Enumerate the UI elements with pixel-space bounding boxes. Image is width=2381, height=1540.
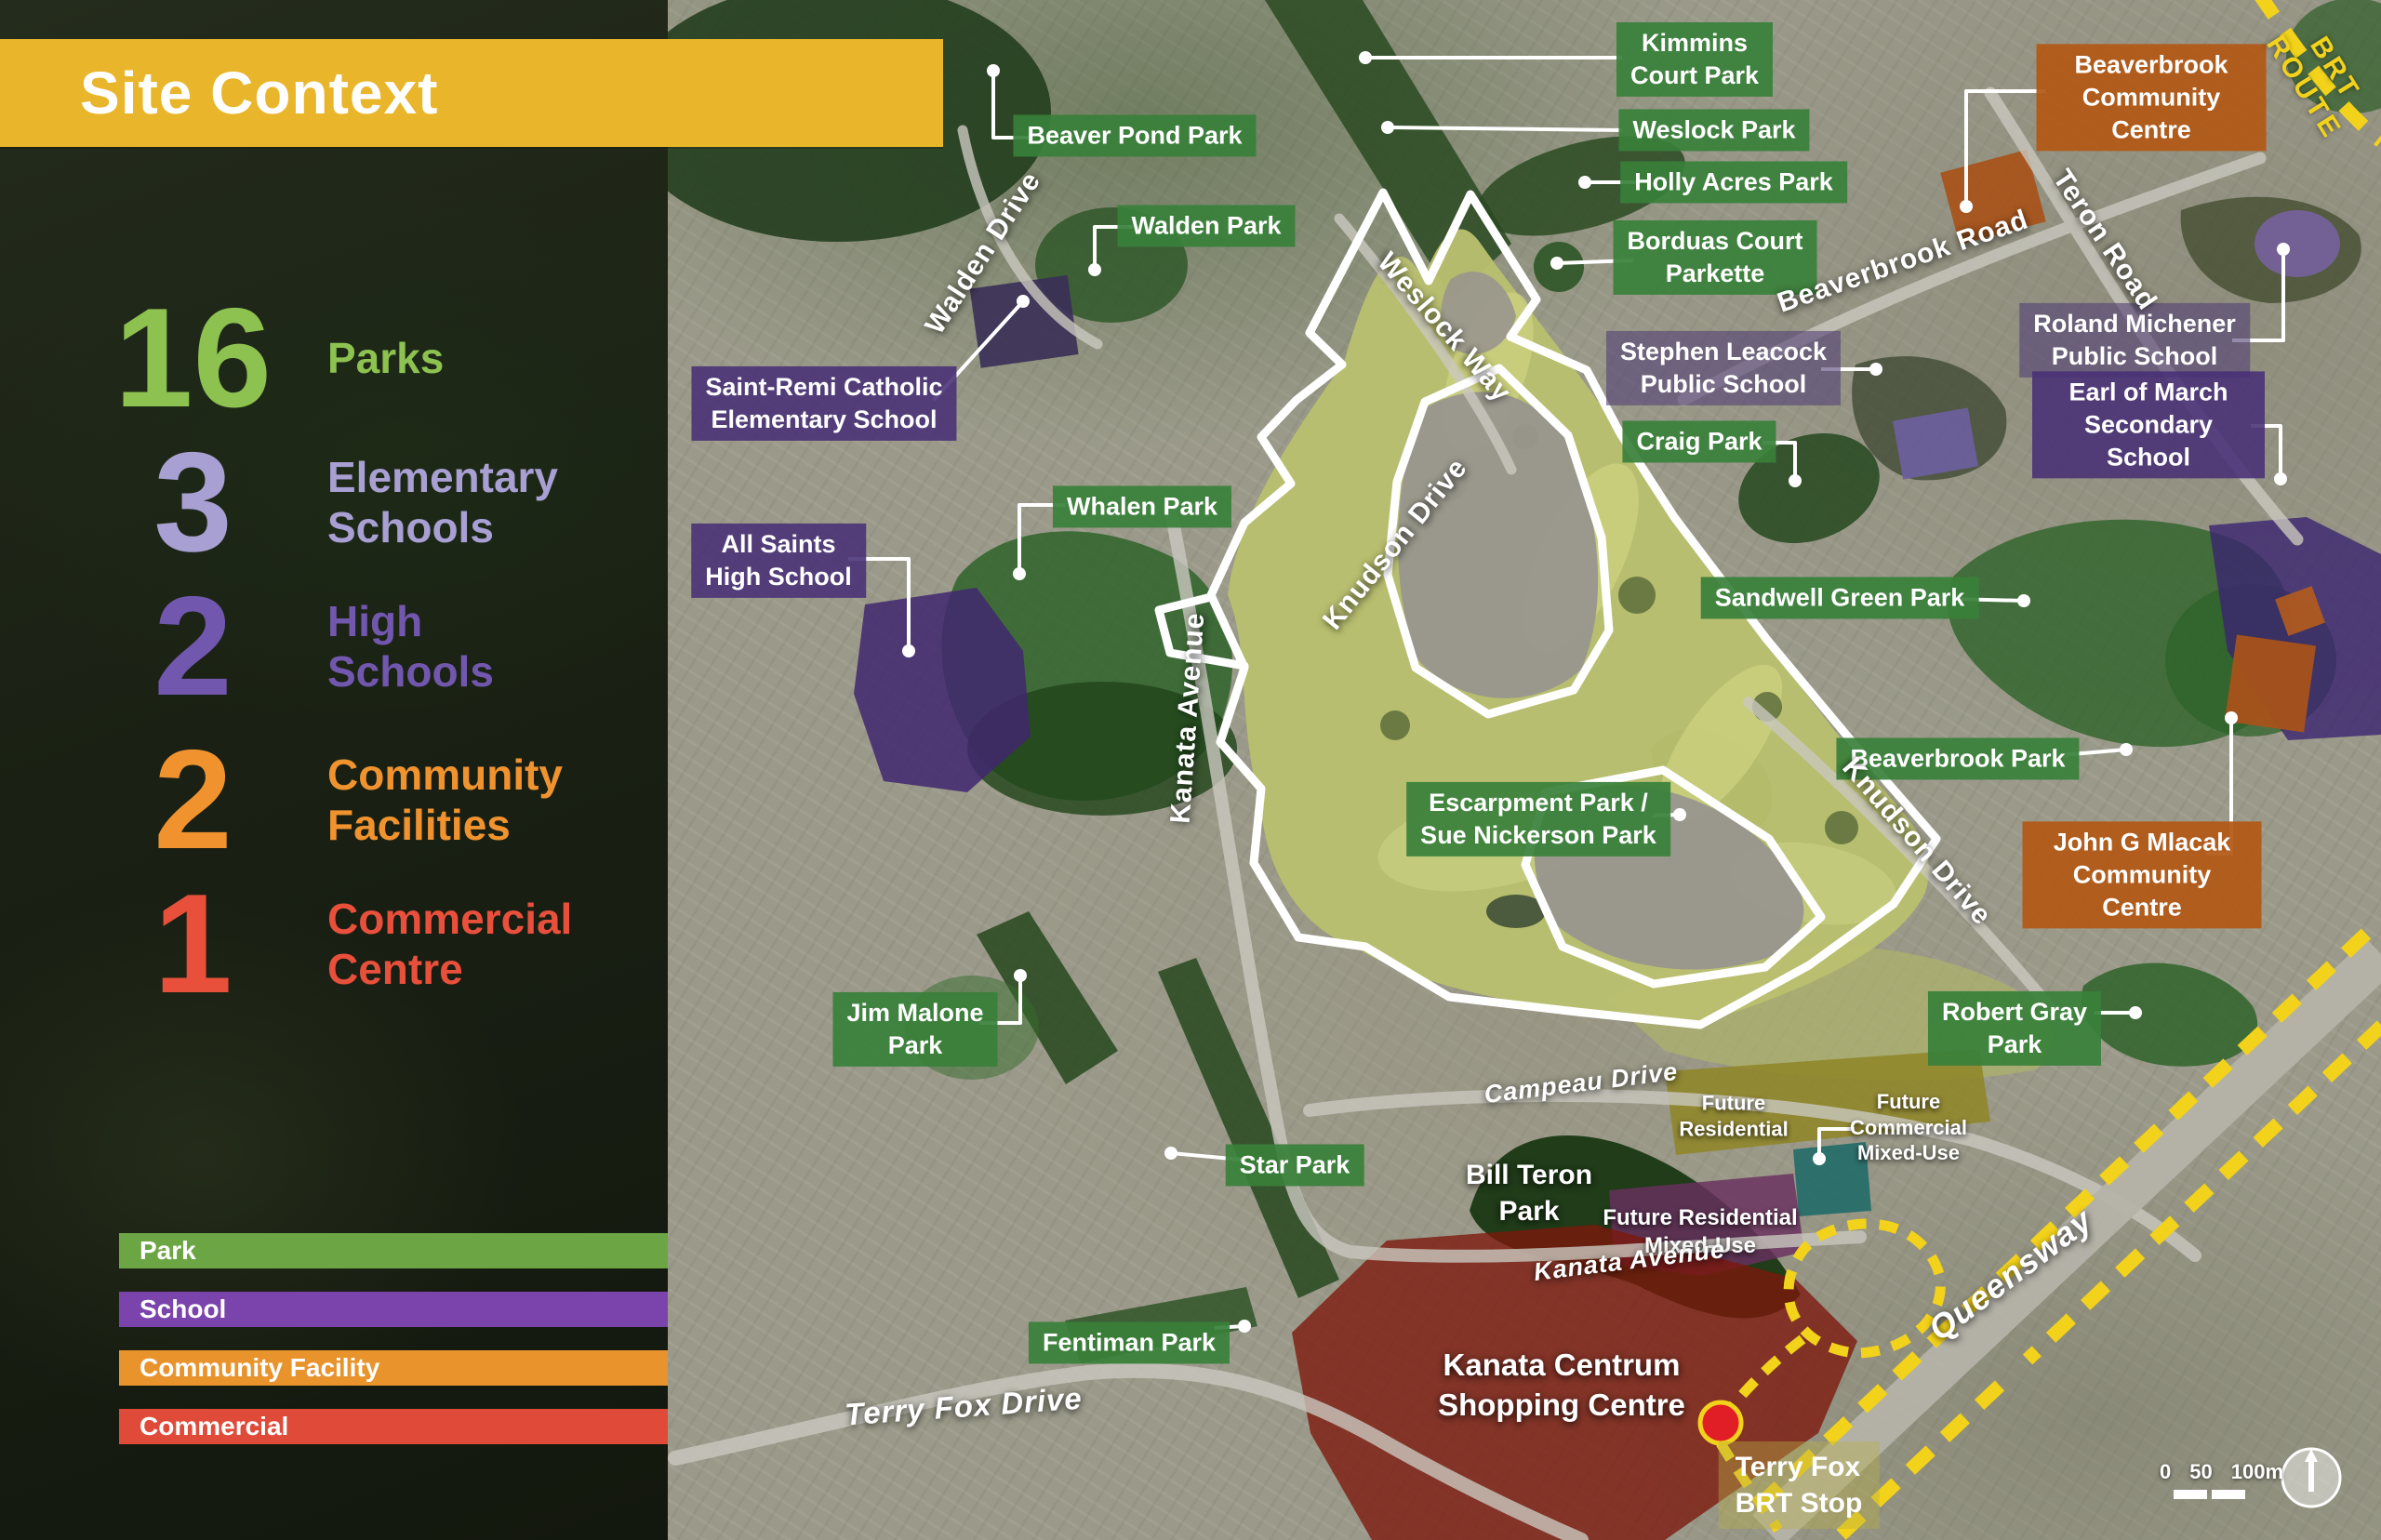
scale-tick-50: 50 xyxy=(2189,1460,2212,1484)
scale-bar-ticks: 0 50 100m xyxy=(2160,1460,2283,1484)
stat-commercial-label: Commercial Centre xyxy=(327,894,572,995)
legend-item-community-facility: Community Facility xyxy=(119,1350,668,1386)
map-label-john-g-mlacak-community-centre: John G Mlacak Community Centre xyxy=(2023,821,2262,928)
map-label-all-saints-high-school: All Saints High School xyxy=(691,524,866,598)
map-label-sandwell-green-park: Sandwell Green Park xyxy=(1701,577,1979,618)
stat-elementary-label: Elementary Schools xyxy=(327,452,558,553)
north-compass-icon xyxy=(2282,1449,2340,1507)
title-banner: Site Context xyxy=(0,39,943,147)
map-label-beaver-pond-park: Beaver Pond Park xyxy=(1013,114,1256,156)
scale-tick-0: 0 xyxy=(2160,1460,2171,1484)
page-title: Site Context xyxy=(0,59,438,127)
map-label-saint-remi-school: Saint-Remi Catholic Elementary School xyxy=(691,366,956,441)
map-label-holly-acres-park: Holly Acres Park xyxy=(1620,161,1847,203)
map-label-weslock-park: Weslock Park xyxy=(1618,109,1809,151)
stat-high-schools-count: 2 xyxy=(88,576,298,717)
stat-high-schools-label: High Schools xyxy=(327,596,494,697)
stat-commercial-centre: 1 Commercial Centre xyxy=(88,865,656,1023)
info-panel: 16 Parks 3 Elementary Schools 2 High Sch… xyxy=(0,0,668,1540)
legend-item-school: School xyxy=(119,1292,668,1327)
legend-item-community-facility-label: Community Facility xyxy=(119,1353,379,1383)
scale-bar xyxy=(2174,1490,2245,1499)
legend-item-school-label: School xyxy=(119,1294,226,1324)
stat-parks-count: 16 xyxy=(88,287,298,429)
map-label-stephen-leacock-public-school: Stephen Leacock Public School xyxy=(1606,331,1841,405)
legend-item-commercial-label: Commercial xyxy=(119,1412,288,1441)
stat-elementary-count: 3 xyxy=(88,431,298,573)
stat-community-count: 2 xyxy=(88,729,298,870)
map-label-whalen-park: Whalen Park xyxy=(1053,485,1231,527)
map-label-earl-of-march-secondary-school: Earl of March Secondary School xyxy=(2032,371,2265,478)
map-label-star-park: Star Park xyxy=(1226,1144,1364,1186)
stat-parks-label: Parks xyxy=(327,333,444,383)
map-label-beaverbrook-community-centre: Beaverbrook Community Centre xyxy=(2037,44,2267,151)
map-label-escarpment-sue-nickerson-park: Escarpment Park / Sue Nickerson Park xyxy=(1406,782,1670,856)
map-label-craig-park: Craig Park xyxy=(1622,420,1776,462)
terry-fox-brt-stop-dot xyxy=(1700,1402,1741,1443)
stat-commercial-count: 1 xyxy=(88,873,298,1015)
site-context-map-poster: 16 Parks 3 Elementary Schools 2 High Sch… xyxy=(0,0,2381,1540)
scale-tick-100m: 100m xyxy=(2231,1460,2283,1484)
map-label-future-commercial-mixed-use: Future Commercial Mixed-Use xyxy=(1850,1089,1967,1166)
map-label-fentiman-park: Fentiman Park xyxy=(1029,1321,1230,1363)
stat-elementary-schools: 3 Elementary Schools xyxy=(88,423,656,581)
map-label-bill-teron-park: Bill Teron Park xyxy=(1466,1157,1592,1229)
map-label-future-residential: Future Residential xyxy=(1679,1091,1788,1142)
legend-item-park-label: Park xyxy=(119,1236,196,1266)
map-label-kanata-centrum-shopping-centre: Kanata Centrum Shopping Centre xyxy=(1438,1346,1685,1426)
stat-parks: 16 Parks xyxy=(88,279,656,437)
legend-item-park: Park xyxy=(119,1233,668,1268)
map-label-robert-gray-park: Robert Gray Park xyxy=(1928,991,2101,1066)
stat-high-schools: 2 High Schools xyxy=(88,567,656,725)
map-label-kimmins-court-park: Kimmins Court Park xyxy=(1616,22,1773,97)
map-label-walden-park: Walden Park xyxy=(1117,205,1295,246)
stat-community-label: Community Facilities xyxy=(327,750,563,851)
stat-community-facilities: 2 Community Facilities xyxy=(88,721,656,879)
legend-item-commercial: Commercial xyxy=(119,1409,668,1444)
map-label-jim-malone-park: Jim Malone Park xyxy=(832,992,997,1067)
map-label-terry-fox-brt-stop: Terry Fox BRT Stop xyxy=(1719,1441,1880,1529)
